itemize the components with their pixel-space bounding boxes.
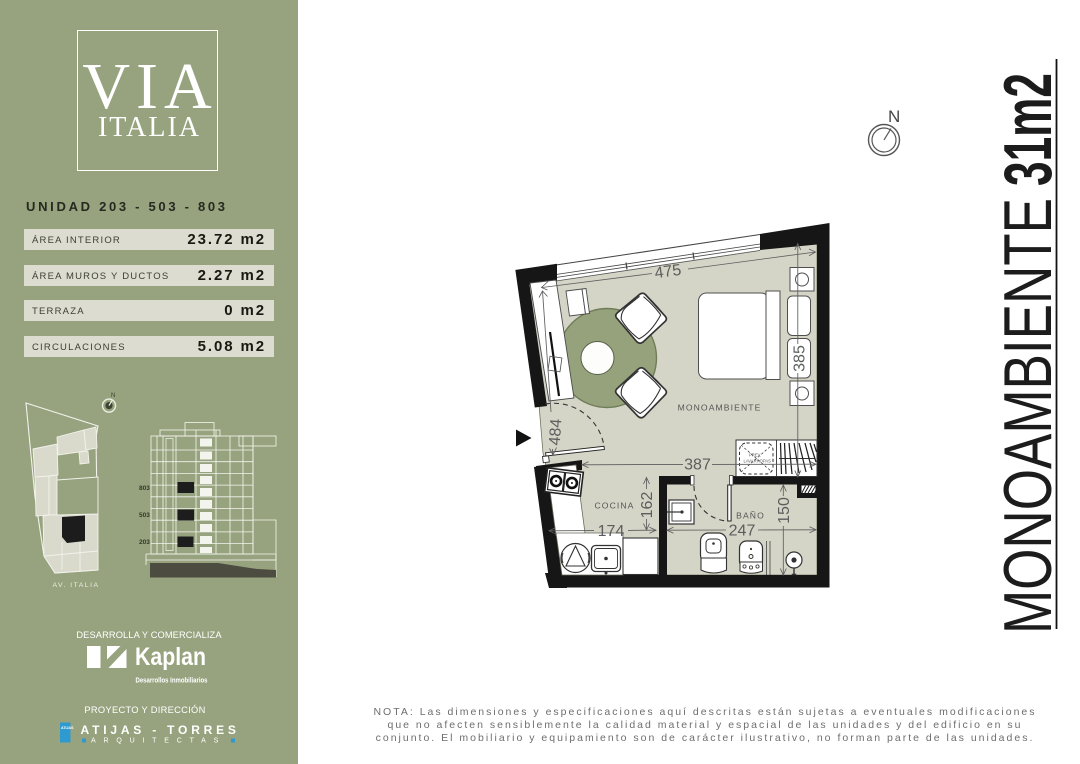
svg-text:203: 203 — [139, 539, 150, 546]
svg-text:PREV.: PREV. — [749, 453, 761, 458]
svg-text:AV. ITALIA: AV. ITALIA — [53, 582, 100, 589]
svg-text:Kaplan: Kaplan — [135, 643, 206, 671]
svg-text:31m2: 31m2 — [990, 73, 1066, 186]
svg-text:803: 803 — [139, 485, 150, 492]
svg-text:174: 174 — [598, 523, 625, 540]
svg-text:162: 162 — [639, 492, 656, 519]
svg-text:385: 385 — [792, 345, 809, 372]
svg-text:ATIJAS - TORRES: ATIJAS - TORRES — [81, 723, 240, 737]
svg-text:LAVARROPAS: LAVARROPAS — [744, 459, 772, 464]
svg-text:503: 503 — [139, 512, 150, 519]
svg-text:484: 484 — [547, 418, 566, 446]
svg-text:ARQUITECTAS: ARQUITECTAS — [91, 738, 226, 745]
svg-text:N: N — [888, 107, 900, 126]
svg-text:ATIJAS: ATIJAS — [61, 726, 74, 730]
svg-text:387: 387 — [684, 457, 711, 474]
svg-text:150: 150 — [776, 497, 793, 524]
svg-text:247: 247 — [729, 523, 756, 540]
svg-text:MONOAMBIENTE: MONOAMBIENTE — [678, 403, 762, 413]
svg-text:MONOAMBIENTE: MONOAMBIENTE — [990, 198, 1066, 634]
svg-text:N: N — [111, 393, 115, 399]
svg-text:Desarrollos Inmobiliarios: Desarrollos Inmobiliarios — [136, 676, 208, 685]
svg-text:COCINA: COCINA — [594, 501, 634, 511]
svg-text:475: 475 — [654, 262, 683, 282]
svg-text:BAÑO: BAÑO — [736, 511, 765, 521]
